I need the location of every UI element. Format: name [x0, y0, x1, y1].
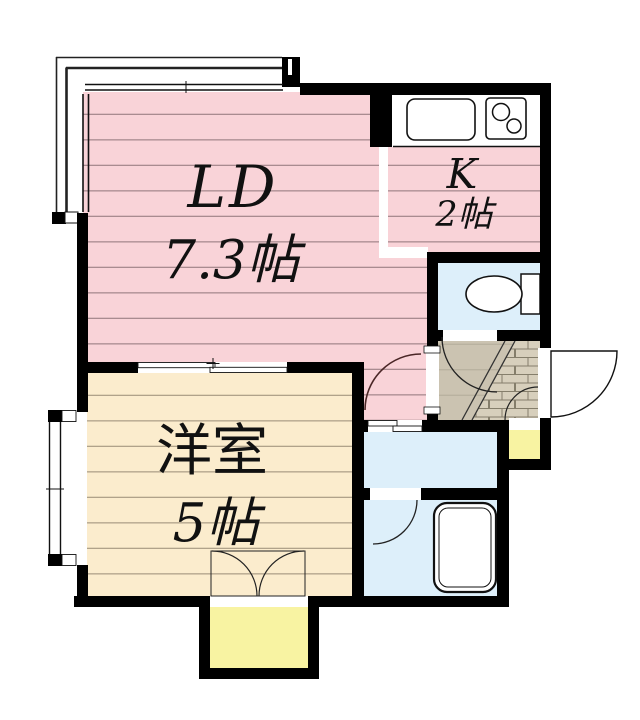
hall-door-jamb-bottom	[424, 407, 440, 414]
closet-opening	[210, 596, 308, 607]
wall-right	[540, 83, 551, 348]
storage-wall-right	[308, 596, 319, 679]
storage-wall-left	[199, 596, 210, 679]
room-label-kitchen: K	[446, 150, 480, 198]
hall-door-jamb-top	[424, 346, 440, 353]
hall-door-opening	[426, 350, 439, 410]
toilet-wall-top	[427, 252, 540, 263]
toilet-door-opening	[443, 330, 497, 341]
storage-wall-bottom	[199, 668, 319, 679]
kitchen-pillar	[370, 94, 392, 147]
room-label-ld: LD	[186, 153, 278, 221]
washroom-floor	[364, 432, 497, 488]
wall-wet-right	[497, 420, 509, 607]
bathtub-icon	[434, 503, 496, 592]
stove-icon	[486, 98, 526, 139]
bathroom-door-opening	[370, 488, 421, 500]
toilet-wall-left	[427, 252, 438, 341]
toilet-icon	[466, 274, 540, 314]
wall-top	[300, 83, 551, 95]
storage-box	[210, 607, 308, 668]
balcony-post-slit	[288, 59, 292, 75]
entrance-door-swing	[551, 351, 617, 417]
room-size-kitchen: 2帖	[434, 195, 497, 235]
balcony-end-post	[52, 212, 66, 224]
room-size-western: 5帖	[173, 493, 267, 554]
porch-threshold	[509, 418, 540, 430]
western-window	[46, 410, 76, 566]
floor-plan-drawing: LD 7.3帖 K 2帖 洋室 5帖	[0, 0, 640, 720]
ld-kitchen-boundary	[379, 147, 388, 248]
wall-left-upper	[77, 213, 88, 412]
ld-window-end-cap	[65, 212, 78, 223]
floor-plan-page: LD 7.3帖 K 2帖 洋室 5帖	[0, 0, 640, 720]
kitchen-counter-gap	[392, 94, 398, 147]
wall-western-right	[352, 362, 364, 607]
room-size-ld: 7.3帖	[162, 230, 306, 291]
room-label-western: 洋室	[156, 419, 268, 484]
entrance-porch	[509, 430, 540, 459]
kitchen-south-boundary	[379, 247, 428, 258]
kitchen-sink-icon	[407, 99, 475, 140]
western-room-floor	[87, 373, 352, 596]
